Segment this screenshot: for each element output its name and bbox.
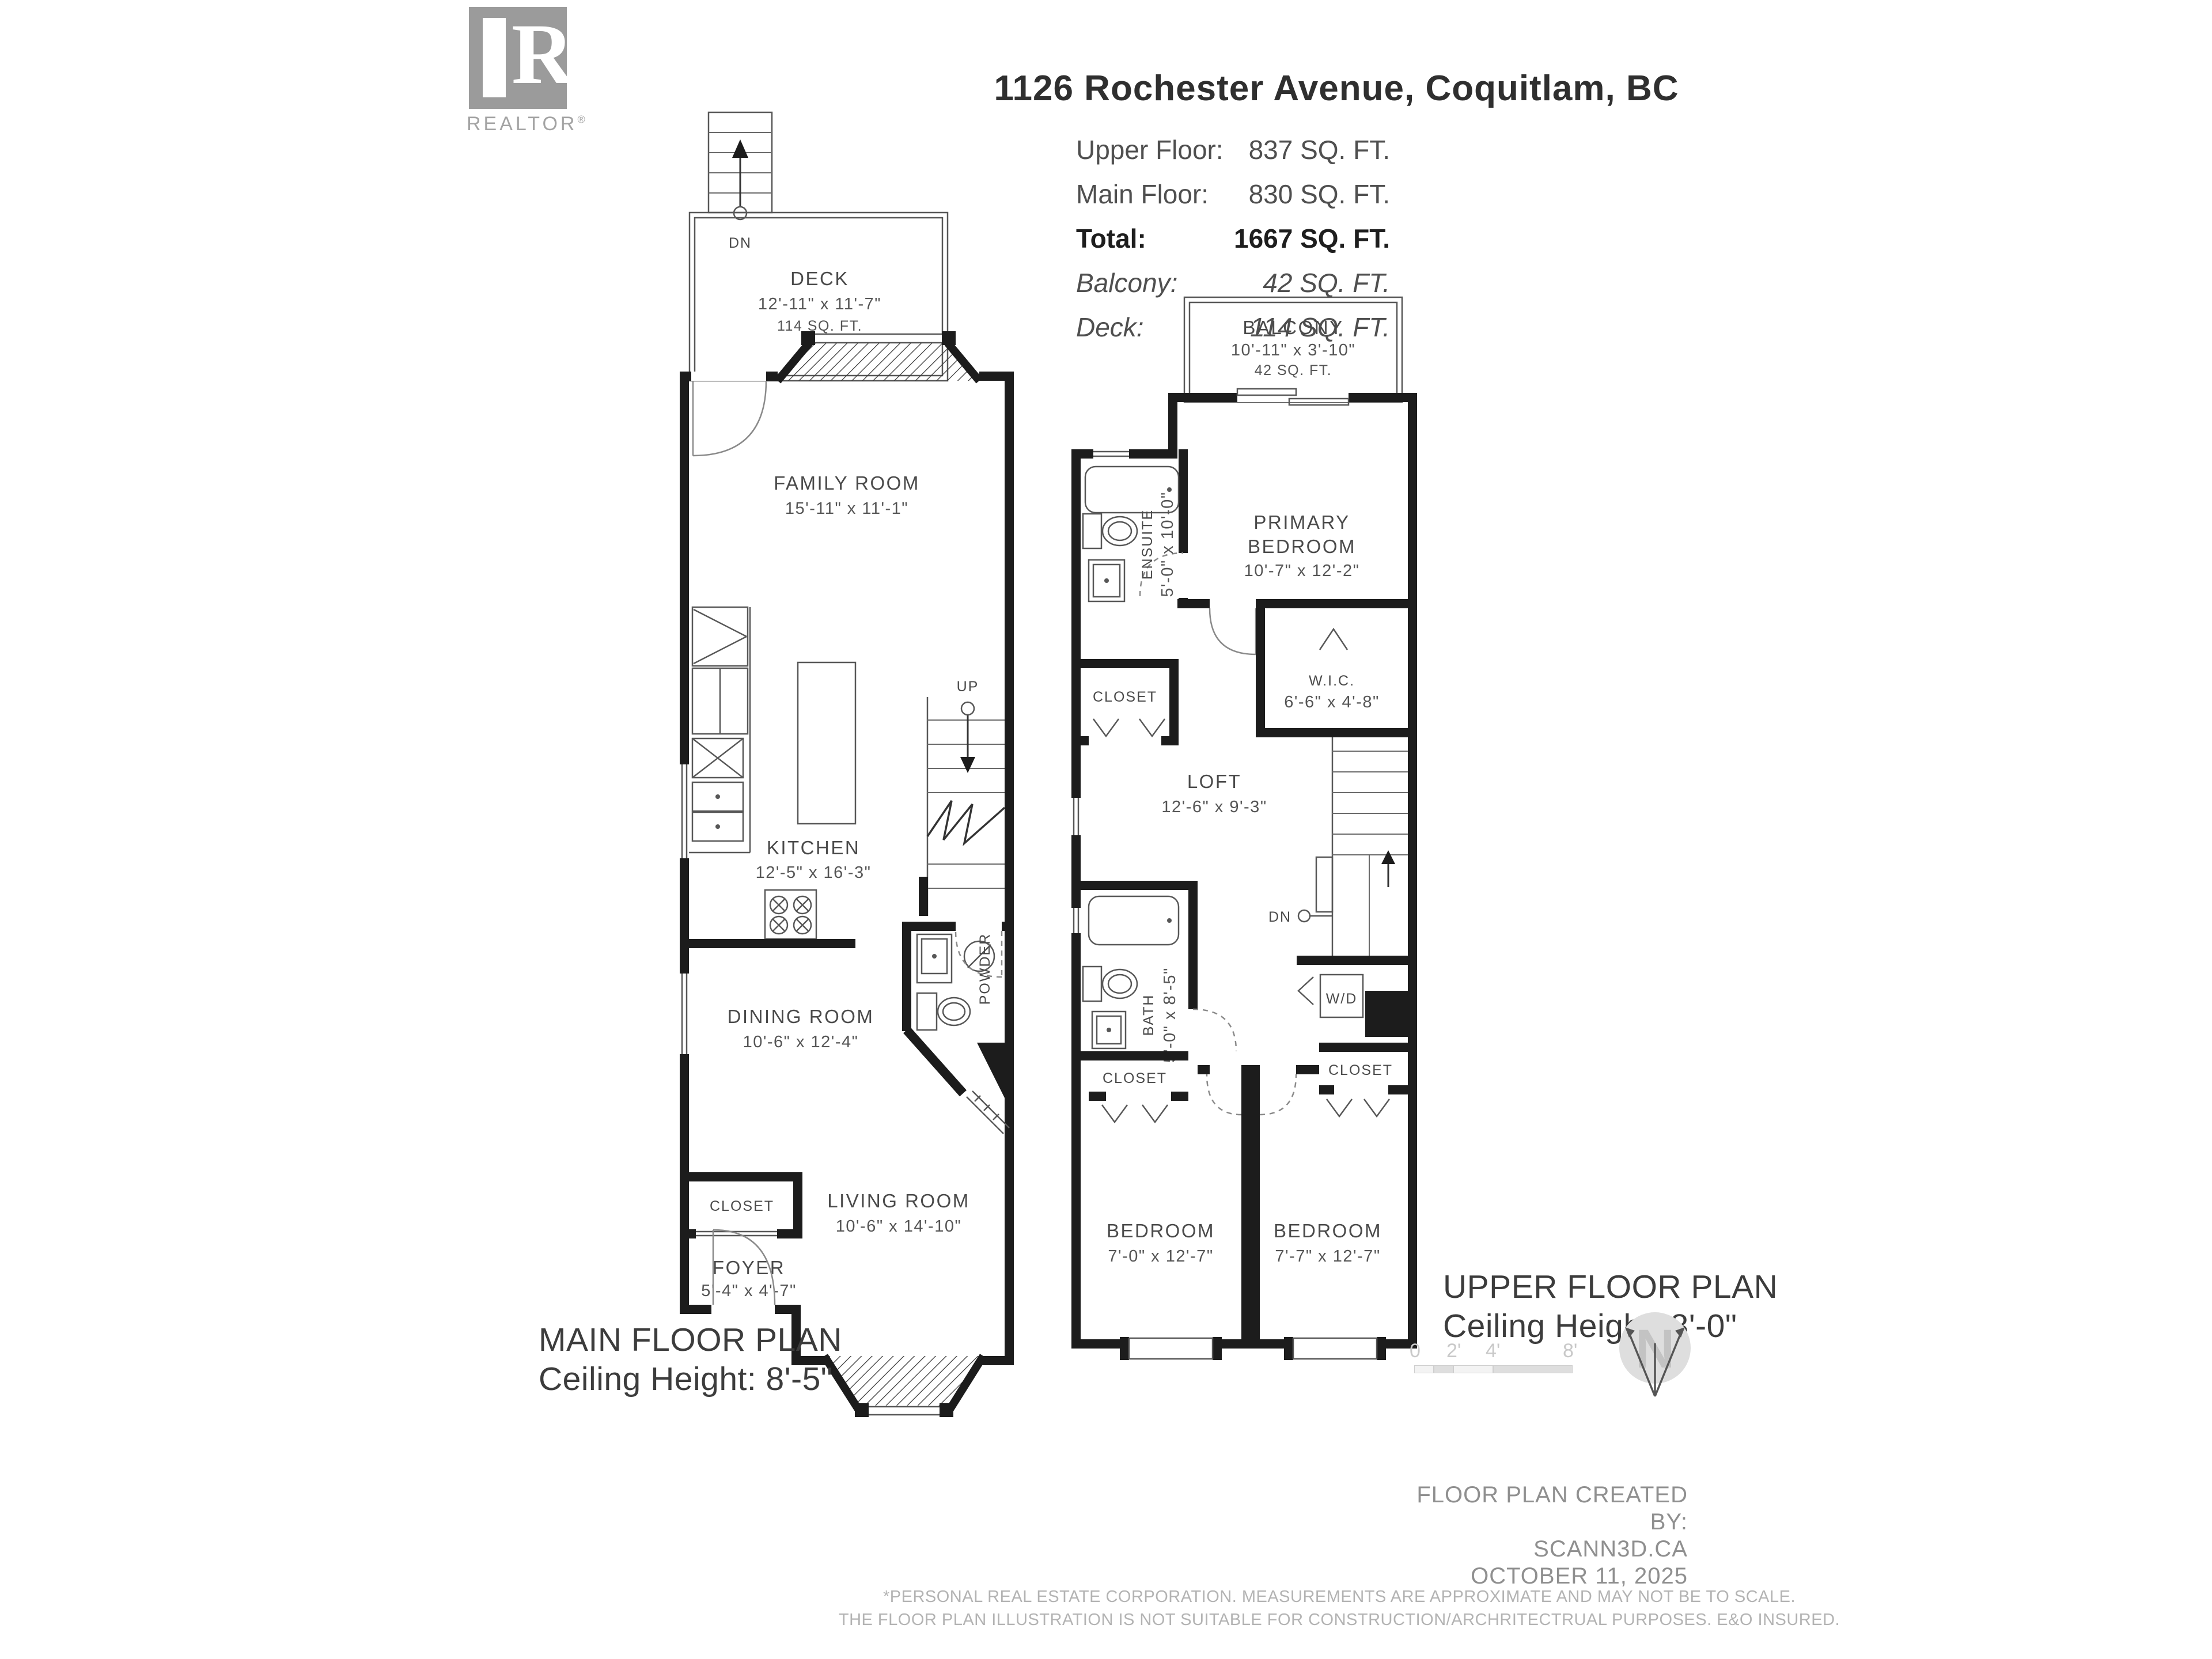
upper-floor-plan-drawing: BALCONY 10'-11" x 3'-10" 42 SQ. FT. <box>1066 276 1423 1371</box>
realtor-text: REALTOR <box>467 113 577 135</box>
deck-dims: 12'-11" x 11'-7" <box>758 295 881 313</box>
realtor-wordmark: REALTOR® <box>467 113 599 135</box>
foyer: FOYER 5'-4" x 4'-7" <box>701 1230 797 1305</box>
primary-bedroom-label-2: BEDROOM <box>1248 536 1356 557</box>
disclaimer-block: *PERSONAL REAL ESTATE CORPORATION. MEASU… <box>824 1585 1855 1631</box>
balcony-area: 42 SQ. FT. <box>1255 362 1332 378</box>
scale-tick-2: 2' <box>1446 1340 1461 1362</box>
bay-window <box>778 331 979 381</box>
bifold-chevron <box>1102 1105 1127 1122</box>
scale-tick-4: 4' <box>1486 1340 1500 1362</box>
row-label: Upper Floor: <box>1076 128 1224 172</box>
toilet-icon <box>917 993 970 1030</box>
deck-area: 114 SQ. FT. <box>777 318 862 334</box>
deck-dn-label: DN <box>729 235 752 251</box>
deck-label: DECK <box>790 268 849 289</box>
stairs-up-arrow-icon <box>732 139 748 158</box>
sink-icon <box>692 782 743 841</box>
ensuite-label: ENSUITE <box>1139 509 1156 579</box>
closet-label: CLOSET <box>1328 1062 1393 1078</box>
bedroom-left-label: BEDROOM <box>1107 1220 1215 1241</box>
stairs-down: DN <box>1268 737 1417 965</box>
sink-icon <box>917 934 952 983</box>
closet-label: CLOSET <box>1103 1070 1167 1086</box>
bifold-chevron <box>1142 1105 1168 1122</box>
scale-segment <box>1434 1365 1453 1373</box>
dining-room-label: DINING ROOM <box>728 1006 874 1027</box>
angled-window <box>967 1091 1009 1134</box>
foyer-label: FOYER <box>713 1257 785 1278</box>
row-value: 830 SQ. FT. <box>1249 172 1390 217</box>
balcony-label: BALCONY <box>1243 317 1343 338</box>
main-plan-name: MAIN FLOOR PLAN <box>539 1320 842 1359</box>
scale-bar: 0 2' 4' 8' <box>1414 1340 1575 1377</box>
sink-icon <box>1089 560 1124 601</box>
row-value: 1667 SQ. FT. <box>1234 217 1390 261</box>
row-value: 837 SQ. FT. <box>1249 128 1390 172</box>
bifold-chevron <box>1327 1099 1352 1116</box>
wic-label: W.I.C. <box>1309 673 1355 689</box>
powder-room: POWDER <box>902 922 1009 1134</box>
realtor-logo-letter: R <box>512 8 574 100</box>
wd-label: W/D <box>1326 991 1358 1007</box>
door <box>691 372 766 456</box>
realtor-logo-icon: R <box>469 7 567 109</box>
closet-label: CLOSET <box>1093 689 1157 705</box>
toilet-icon <box>1083 967 1137 1001</box>
compass-north-icon: N <box>1606 1303 1704 1404</box>
bath-label: BATH <box>1141 994 1157 1036</box>
closet: CLOSET <box>1319 1043 1408 1116</box>
stairs-up-arrow-icon <box>1381 850 1395 864</box>
page-title: 1126 Rochester Avenue, Coquitlam, BC <box>922 68 1751 109</box>
bifold-chevron <box>1364 1099 1389 1116</box>
powder-label: POWDER <box>977 933 993 1005</box>
scale-segment <box>1414 1365 1434 1373</box>
bedroom-right-label: BEDROOM <box>1274 1220 1382 1241</box>
door-arc <box>1207 1074 1241 1115</box>
bath-dims: 5'-0" x 8'-5" <box>1161 967 1179 1063</box>
toilet-icon <box>1083 514 1137 548</box>
chase-block <box>1365 991 1408 1037</box>
scale-tick-8: 8' <box>1563 1340 1577 1362</box>
party-wall <box>1241 1065 1260 1339</box>
created-by-company: SCANN3D.CA <box>1394 1536 1688 1563</box>
family-room-label: FAMILY ROOM <box>774 472 920 494</box>
living-room-dims: 10'-6" x 14'-10" <box>836 1217 962 1236</box>
bathroom: BATH 5'-0" x 8'-5" <box>1081 881 1236 1063</box>
hanger-chevron-icon <box>1320 629 1347 650</box>
upper-plan-name: UPPER FLOOR PLAN <box>1443 1267 1778 1306</box>
created-by-line: FLOOR PLAN CREATED BY: <box>1394 1482 1688 1536</box>
laundry: W/D <box>1298 975 1408 1037</box>
row-label: Total: <box>1076 217 1146 261</box>
door-arc <box>1210 608 1256 654</box>
ensuite: ENSUITE 5'-0" x 10'-0" <box>1083 449 1188 601</box>
scale-segment <box>1453 1365 1493 1373</box>
bedroom-left-dims: 7'-0" x 12'-7" <box>1108 1247 1213 1266</box>
sink-icon <box>1092 1012 1126 1048</box>
door-arc <box>1193 1009 1236 1051</box>
bifold-chevron <box>1298 977 1313 1005</box>
dining-room-dims: 10'-6" x 12'-4" <box>743 1033 859 1051</box>
wic-dims: 6'-6" x 4'-8" <box>1284 693 1380 711</box>
bedroom-right-dims: 7'-7" x 12'-7" <box>1275 1247 1380 1266</box>
kitchen-island <box>798 662 855 824</box>
created-by-block: FLOOR PLAN CREATED BY: SCANN3D.CA OCTOBE… <box>1394 1482 1688 1590</box>
loft-dims: 12'-6" x 9'-3" <box>1161 798 1267 816</box>
main-floor-plan-drawing: DN DECK 12'-11" x 11'-7" 114 SQ. FT. <box>657 109 1037 1423</box>
main-plan-ceiling: Ceiling Height: 8'-5" <box>539 1359 842 1399</box>
stairs-dn-label: DN <box>1268 909 1291 925</box>
floor-plan-page: R REALTOR® 1126 Rochester Avenue, Coquit… <box>0 0 2212 1659</box>
disclaimer-line: THE FLOOR PLAN ILLUSTRATION IS NOT SUITA… <box>824 1608 1855 1631</box>
closet: CLOSET <box>1071 659 1179 745</box>
primary-bedroom-dims: 10'-7" x 12'-2" <box>1244 562 1360 580</box>
bathtub-icon <box>1089 896 1179 945</box>
row-label: Main Floor: <box>1076 172 1209 217</box>
interior-walls <box>1177 599 1408 654</box>
walk-in-closet: W.I.C. 6'-6" x 4'-8" <box>1256 608 1408 737</box>
table-row: Main Floor:830 SQ. FT. <box>1076 172 1390 217</box>
loft-label: LOFT <box>1187 771 1241 792</box>
bifold-chevron <box>1139 719 1165 736</box>
bay-window <box>824 1356 983 1417</box>
pantry-cabinet <box>692 607 748 666</box>
kitchen-dims: 12'-5" x 16'-3" <box>756 863 872 882</box>
kitchen-label: KITCHEN <box>767 837 860 858</box>
table-row: Upper Floor:837 SQ. FT. <box>1076 128 1390 172</box>
kitchen-fixtures <box>680 607 855 948</box>
table-row-total: Total:1667 SQ. FT. <box>1076 217 1390 261</box>
closet-label: CLOSET <box>710 1198 774 1214</box>
ensuite-dims: 5'-0" x 10'-0" <box>1158 491 1177 597</box>
family-room-dims: 15'-11" x 11'-1" <box>785 499 908 518</box>
stove-icon <box>765 890 816 939</box>
scale-segment <box>1493 1365 1573 1373</box>
bifold-chevron <box>1093 719 1119 736</box>
living-room-label: LIVING ROOM <box>827 1190 970 1211</box>
balcony-dims: 10'-11" x 3'-10" <box>1231 341 1355 359</box>
closet: CLOSET <box>680 1172 802 1238</box>
primary-bedroom-label-1: PRIMARY <box>1253 512 1350 533</box>
realtor-logo-bar <box>483 18 506 97</box>
door-arc <box>1260 1074 1296 1115</box>
interior-walls <box>1198 1065 1319 1339</box>
registered-symbol: ® <box>577 114 588 126</box>
balcony: BALCONY 10'-11" x 3'-10" 42 SQ. FT. <box>1184 297 1402 402</box>
stairs-up-label: UP <box>957 679 979 695</box>
foyer-dims: 5'-4" x 4'-7" <box>701 1282 797 1300</box>
scale-tick-0: 0 <box>1410 1340 1421 1362</box>
disclaimer-line: *PERSONAL REAL ESTATE CORPORATION. MEASU… <box>824 1585 1855 1608</box>
main-floor-plan-title: MAIN FLOOR PLAN Ceiling Height: 8'-5" <box>539 1320 842 1399</box>
